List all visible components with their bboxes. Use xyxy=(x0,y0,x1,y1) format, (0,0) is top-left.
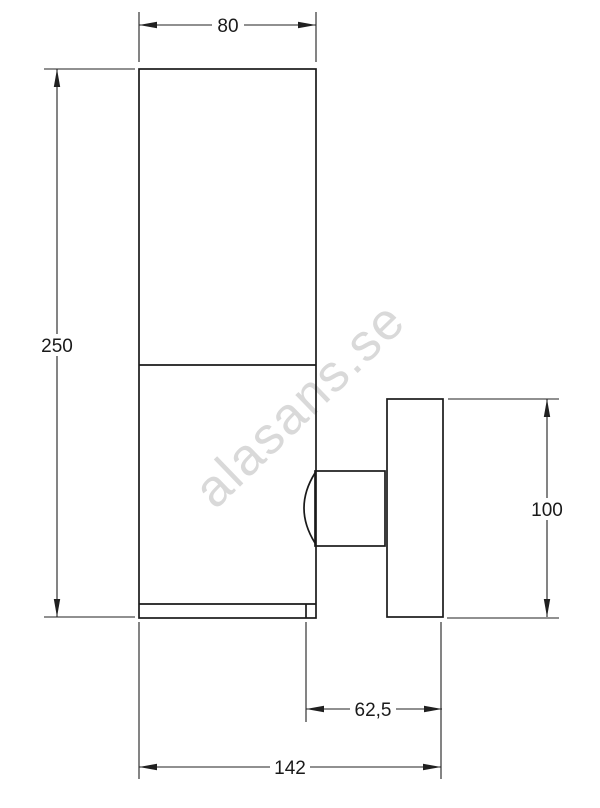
dimension-bracket-height: 100 xyxy=(447,399,567,618)
lamp-shapes xyxy=(139,69,443,618)
arrowhead-up-icon xyxy=(544,399,550,417)
arrowhead-up-icon xyxy=(54,69,60,87)
arrowhead-left-icon xyxy=(139,22,157,28)
arrowhead-down-icon xyxy=(54,599,60,617)
dimension-label-bracket-height: 100 xyxy=(531,500,563,521)
arrowhead-left-icon xyxy=(139,764,157,770)
dimension-drawing-svg: 80 250 100 62,5 xyxy=(0,0,600,808)
arrowhead-left-icon xyxy=(306,706,324,712)
dimension-label-bracket-offset: 62,5 xyxy=(355,700,392,721)
dimension-label-total-depth: 142 xyxy=(274,758,306,779)
dimension-body-height: 250 xyxy=(38,69,135,617)
arrowhead-down-icon xyxy=(544,599,550,617)
dimension-bracket-offset: 62,5 xyxy=(306,622,442,722)
dimension-label-body-width: 80 xyxy=(217,16,238,37)
lamp-body-outline xyxy=(139,69,316,618)
arrowhead-right-icon xyxy=(423,764,441,770)
dimension-label-body-height: 250 xyxy=(41,336,73,357)
arrowhead-right-icon xyxy=(424,706,442,712)
technical-drawing-canvas: alasans.se 80 xyxy=(0,0,600,808)
wall-bracket-outline xyxy=(387,399,443,617)
connector-arc xyxy=(304,473,315,543)
dimension-body-width: 80 xyxy=(139,12,316,62)
arrowhead-right-icon xyxy=(298,22,316,28)
connector-block-outline xyxy=(315,471,385,546)
